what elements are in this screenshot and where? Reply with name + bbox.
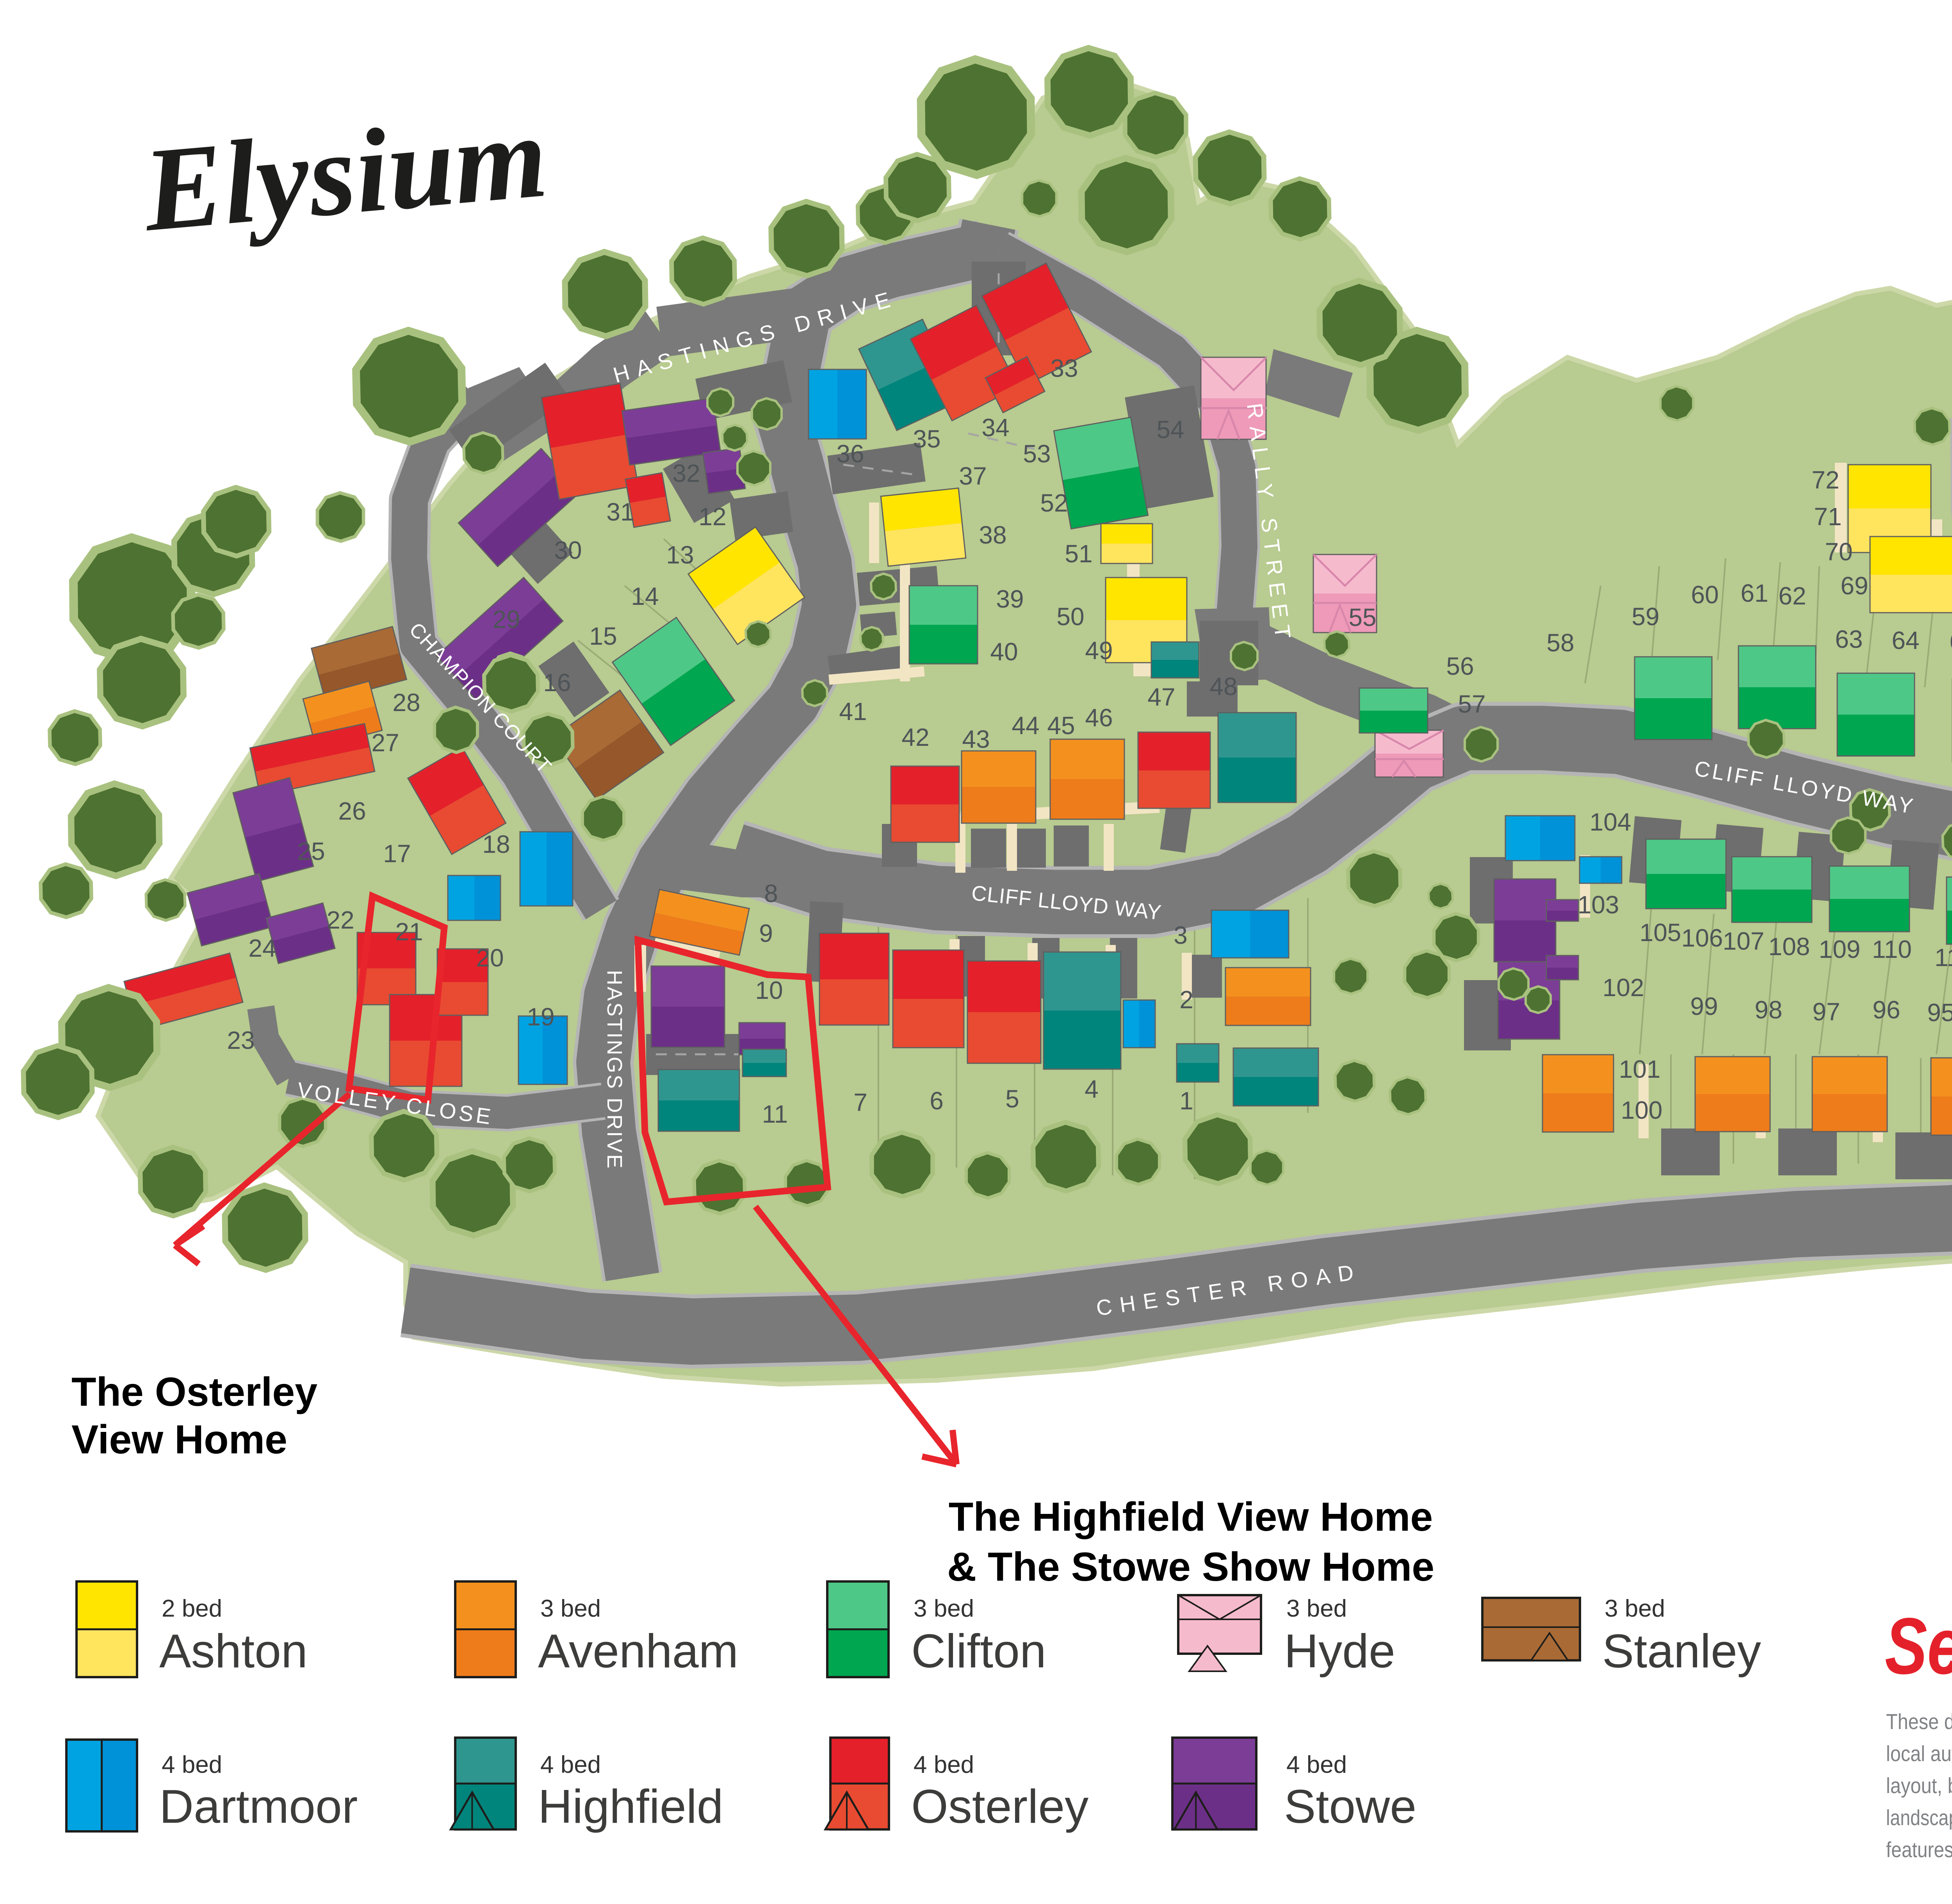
svg-text:layout, but occasionally we do: layout, but occasionally we do have to c… — [1886, 1773, 1952, 1798]
svg-text:Stanley: Stanley — [1602, 1624, 1761, 1678]
svg-text:25: 25 — [297, 837, 325, 865]
svg-text:Highfield: Highfield — [538, 1780, 723, 1833]
svg-text:23: 23 — [227, 1026, 255, 1054]
svg-text:3: 3 — [1174, 921, 1188, 949]
svg-text:13: 13 — [666, 541, 694, 569]
svg-text:50: 50 — [1056, 603, 1084, 631]
svg-text:103: 103 — [1578, 891, 1619, 919]
svg-text:63: 63 — [1835, 625, 1863, 653]
svg-text:5: 5 — [1005, 1085, 1019, 1113]
svg-text:48: 48 — [1209, 672, 1237, 701]
svg-text:28: 28 — [392, 688, 420, 717]
svg-text:24: 24 — [248, 934, 276, 962]
svg-text:These do not show final detail: These do not show final details of gradi… — [1886, 1709, 1952, 1734]
svg-text:96: 96 — [1872, 996, 1900, 1024]
svg-text:1: 1 — [1179, 1087, 1193, 1115]
svg-text:18: 18 — [482, 830, 510, 858]
svg-text:54: 54 — [1156, 415, 1184, 444]
svg-text:3 bed: 3 bed — [914, 1595, 974, 1622]
svg-text:62: 62 — [1778, 582, 1806, 610]
svg-text:101: 101 — [1619, 1055, 1661, 1083]
svg-text:45: 45 — [1047, 711, 1075, 740]
svg-text:106: 106 — [1681, 924, 1723, 952]
svg-text:The Highfield View Home: The Highfield View Home — [949, 1494, 1433, 1540]
svg-text:100: 100 — [1621, 1096, 1663, 1124]
svg-text:Clifton: Clifton — [911, 1624, 1046, 1678]
svg-text:15: 15 — [589, 622, 617, 650]
svg-text:27: 27 — [371, 729, 399, 757]
svg-text:View Home: View Home — [71, 1417, 287, 1462]
svg-text:3 bed: 3 bed — [540, 1595, 601, 1622]
svg-text:Stowe: Stowe — [1284, 1780, 1416, 1833]
svg-text:30: 30 — [554, 536, 582, 564]
svg-text:36: 36 — [836, 440, 864, 468]
svg-text:110: 110 — [1872, 935, 1912, 963]
svg-text:58: 58 — [1546, 629, 1574, 657]
svg-text:Dartmoor: Dartmoor — [159, 1780, 358, 1833]
svg-text:16: 16 — [543, 669, 571, 697]
svg-text:10: 10 — [755, 976, 783, 1004]
svg-text:33: 33 — [1050, 354, 1078, 382]
svg-text:59: 59 — [1631, 603, 1659, 631]
svg-text:95: 95 — [1927, 998, 1952, 1027]
svg-text:32: 32 — [672, 459, 700, 487]
svg-text:35: 35 — [913, 425, 940, 453]
svg-text:40: 40 — [990, 638, 1018, 666]
svg-text:31: 31 — [606, 498, 634, 526]
svg-text:3 bed: 3 bed — [1286, 1595, 1347, 1622]
svg-text:65: 65 — [1949, 628, 1952, 656]
svg-text:21: 21 — [395, 918, 423, 946]
svg-text:111: 111 — [1934, 943, 1952, 972]
svg-text:26: 26 — [338, 797, 366, 825]
svg-text:Hyde: Hyde — [1284, 1624, 1395, 1678]
svg-text:43: 43 — [962, 725, 990, 753]
svg-text:107: 107 — [1723, 927, 1765, 955]
svg-text:46: 46 — [1085, 704, 1113, 732]
svg-text:64: 64 — [1891, 626, 1919, 654]
svg-text:6: 6 — [930, 1087, 944, 1115]
svg-text:70: 70 — [1825, 538, 1852, 566]
svg-text:41: 41 — [839, 697, 867, 726]
svg-text:22: 22 — [326, 906, 354, 934]
svg-text:51: 51 — [1065, 540, 1092, 568]
svg-text:19: 19 — [527, 1003, 554, 1031]
svg-text:2 bed: 2 bed — [162, 1595, 222, 1622]
svg-text:37: 37 — [959, 462, 987, 490]
svg-text:4 bed: 4 bed — [162, 1751, 222, 1778]
svg-text:34: 34 — [981, 414, 1009, 442]
svg-text:99: 99 — [1690, 992, 1718, 1020]
svg-text:Elysium: Elysium — [137, 89, 552, 257]
svg-text:29: 29 — [492, 605, 520, 633]
svg-text:39: 39 — [996, 585, 1024, 613]
svg-text:& The Stowe Show Home: & The Stowe Show Home — [947, 1544, 1434, 1590]
svg-text:72: 72 — [1811, 466, 1839, 494]
svg-text:38: 38 — [979, 521, 1006, 549]
svg-text:97: 97 — [1812, 998, 1840, 1026]
svg-text:4 bed: 4 bed — [914, 1751, 974, 1778]
svg-text:3 bed: 3 bed — [1605, 1595, 1665, 1622]
svg-text:HASTINGS DRIVE: HASTINGS DRIVE — [603, 970, 626, 1170]
svg-text:Ashton: Ashton — [159, 1624, 308, 1678]
svg-text:The Osterley: The Osterley — [71, 1369, 317, 1415]
svg-text:Seddon Homes.co.uk: Seddon Homes.co.uk — [1885, 1601, 1952, 1691]
svg-text:55: 55 — [1348, 603, 1376, 631]
svg-text:7: 7 — [853, 1088, 867, 1116]
svg-text:52: 52 — [1040, 489, 1068, 517]
svg-text:53: 53 — [1023, 440, 1051, 468]
svg-text:features as the development pr: features as the development proceeds. — [1886, 1837, 1952, 1862]
svg-text:20: 20 — [476, 944, 504, 972]
svg-text:landscaping and the positions: landscaping and the positions of roads, … — [1886, 1805, 1952, 1830]
svg-text:4: 4 — [1085, 1075, 1099, 1103]
svg-text:104: 104 — [1590, 808, 1631, 836]
svg-text:44: 44 — [1012, 711, 1039, 740]
svg-text:9: 9 — [759, 919, 773, 947]
svg-text:108: 108 — [1769, 932, 1810, 961]
svg-text:Avenham: Avenham — [538, 1624, 738, 1678]
svg-text:47: 47 — [1147, 683, 1175, 711]
svg-text:60: 60 — [1691, 581, 1719, 609]
svg-text:12: 12 — [698, 503, 726, 531]
svg-text:56: 56 — [1446, 652, 1474, 680]
svg-text:Osterley: Osterley — [911, 1780, 1088, 1833]
svg-text:4 bed: 4 bed — [540, 1751, 601, 1778]
svg-text:17: 17 — [383, 840, 411, 868]
svg-text:42: 42 — [901, 723, 929, 751]
svg-text:61: 61 — [1740, 579, 1768, 607]
svg-text:71: 71 — [1814, 503, 1842, 531]
svg-text:57: 57 — [1458, 690, 1485, 718]
svg-text:local authority street lightin: local authority street lighting or lands… — [1886, 1741, 1952, 1766]
svg-text:14: 14 — [631, 582, 659, 610]
svg-text:109: 109 — [1819, 935, 1861, 963]
svg-text:105: 105 — [1640, 918, 1681, 947]
svg-text:2: 2 — [1179, 986, 1193, 1014]
svg-text:102: 102 — [1603, 973, 1644, 1002]
svg-text:49: 49 — [1085, 636, 1113, 665]
svg-text:69: 69 — [1840, 572, 1868, 600]
svg-text:4 bed: 4 bed — [1286, 1751, 1347, 1778]
svg-text:98: 98 — [1754, 996, 1782, 1024]
svg-text:11: 11 — [762, 1100, 788, 1128]
svg-text:8: 8 — [764, 879, 778, 907]
